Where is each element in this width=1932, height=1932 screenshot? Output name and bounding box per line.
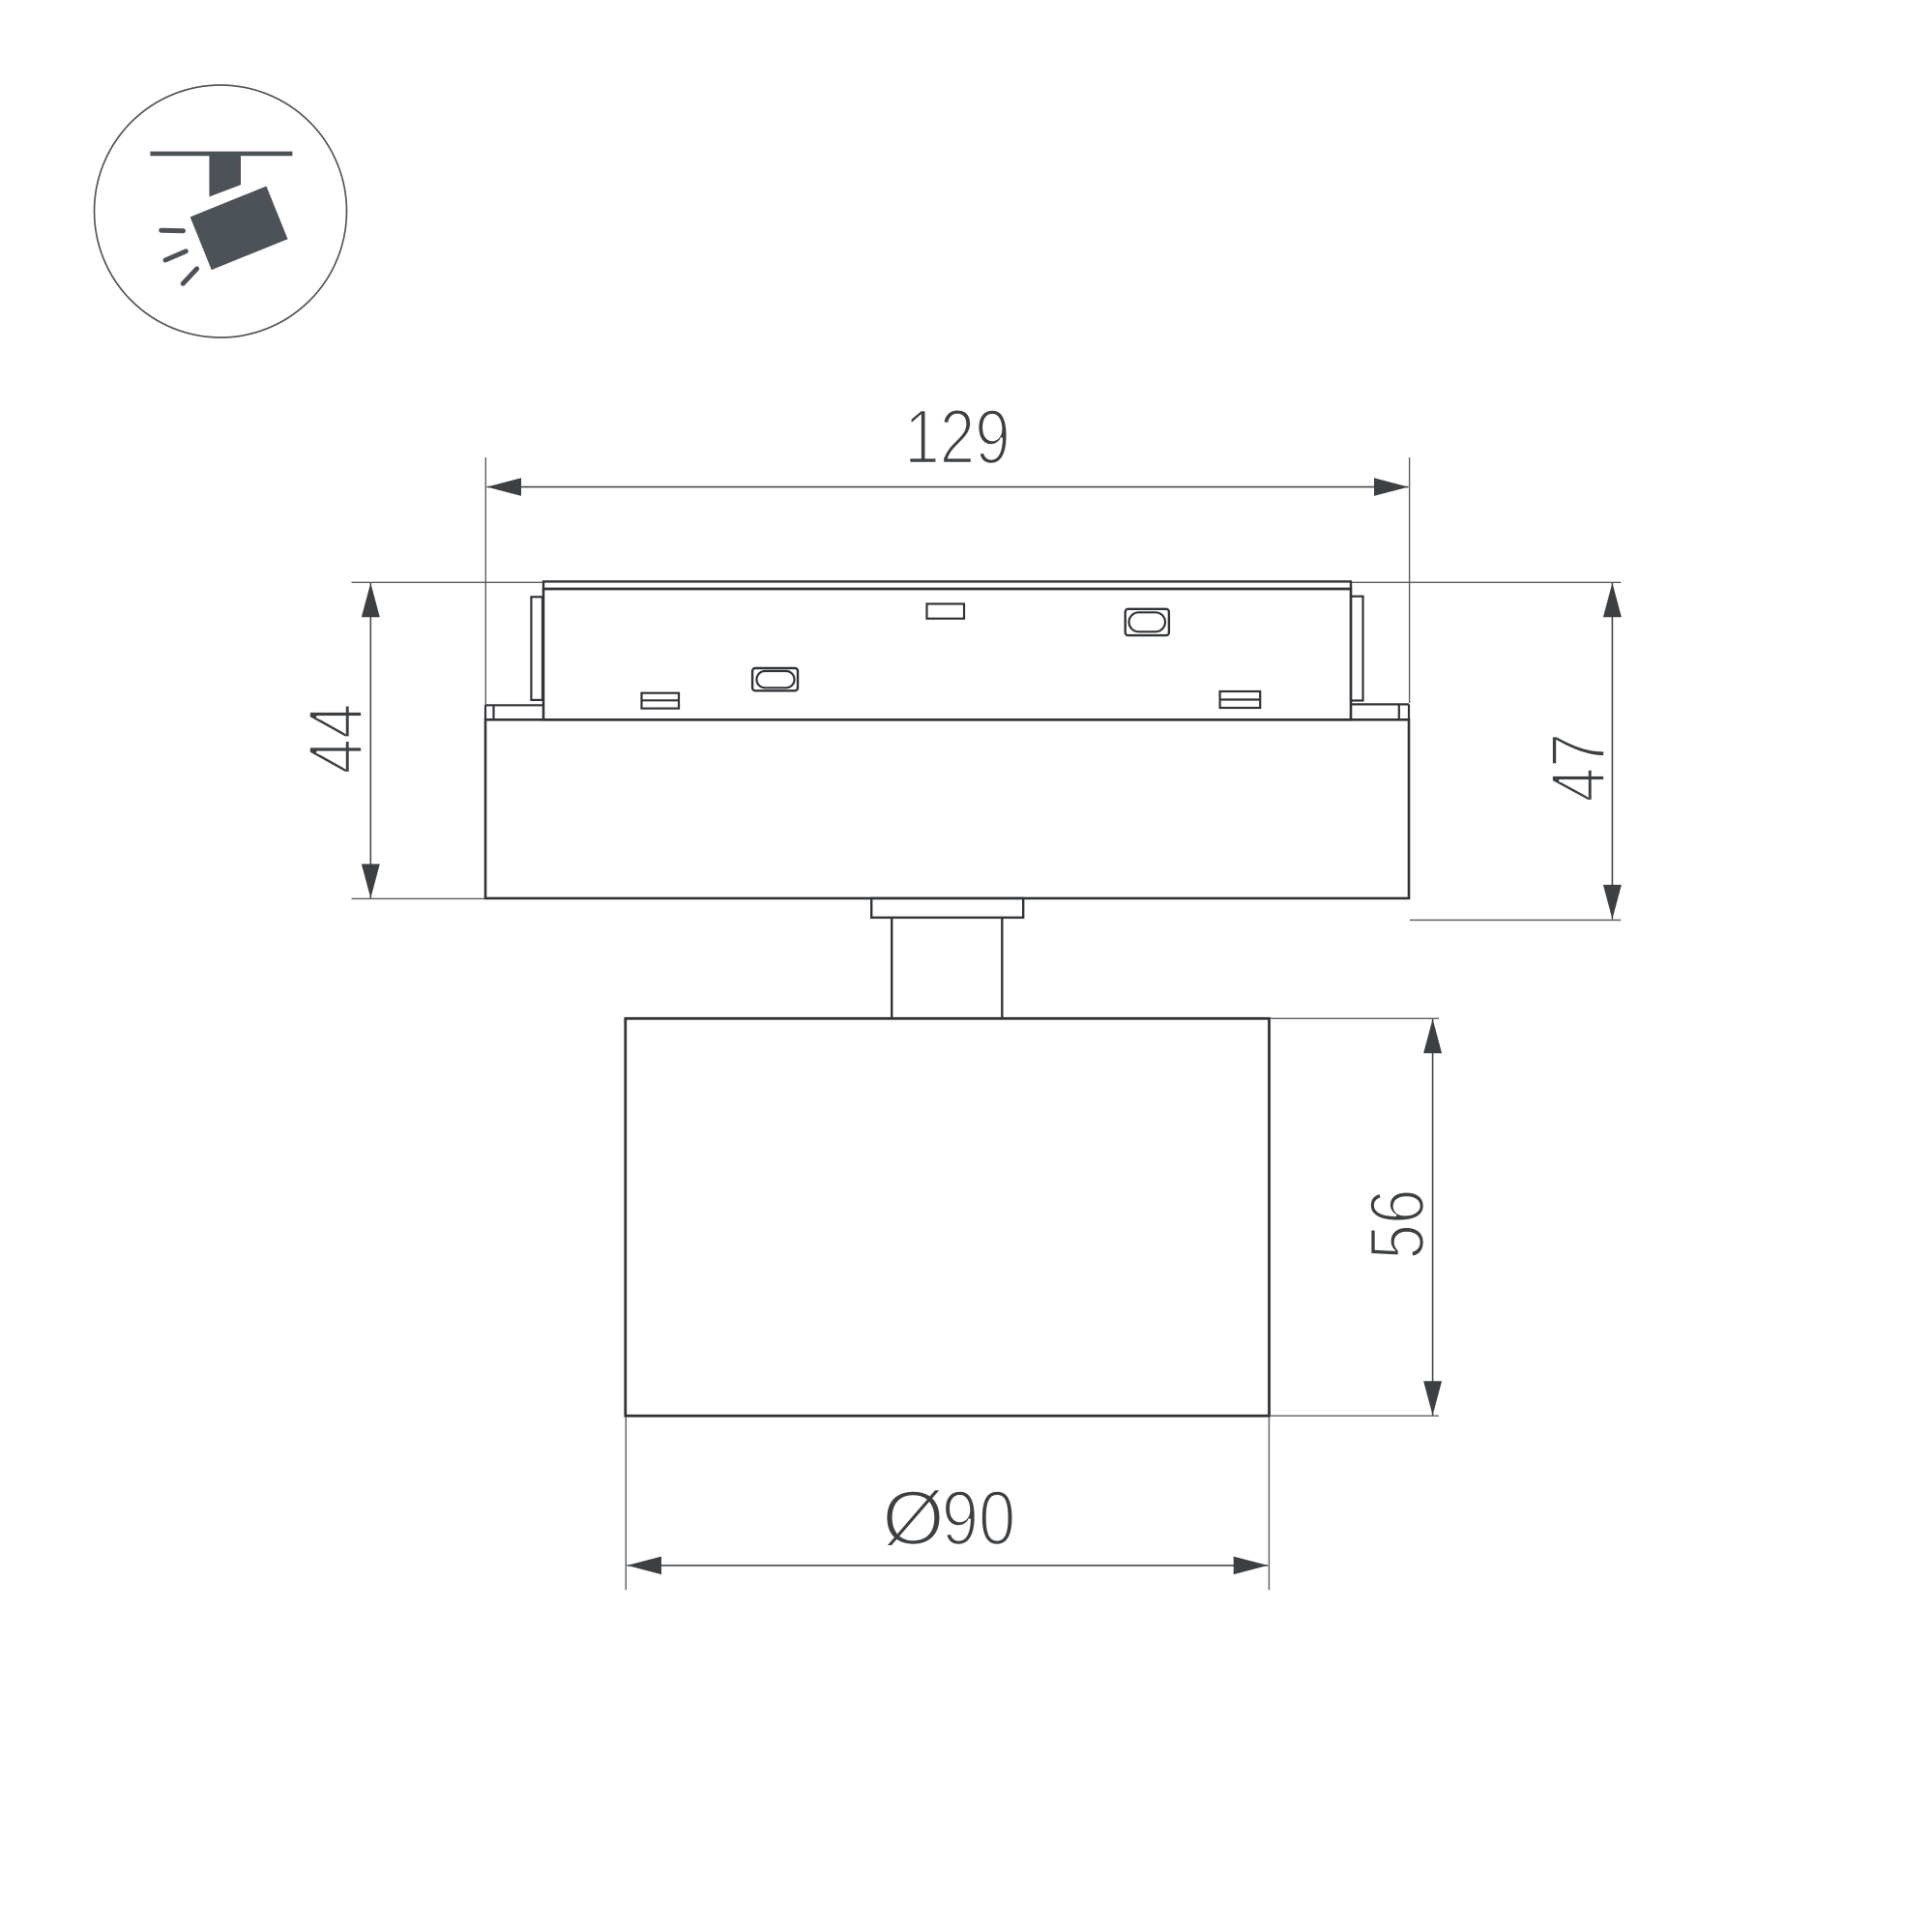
svg-text:90: 90 <box>942 1474 1016 1561</box>
svg-text:44: 44 <box>292 704 379 775</box>
svg-text:129: 129 <box>904 394 1010 481</box>
svg-text:47: 47 <box>1536 733 1622 802</box>
svg-text:Ø: Ø <box>882 1475 945 1561</box>
svg-text:56: 56 <box>1354 1189 1441 1260</box>
